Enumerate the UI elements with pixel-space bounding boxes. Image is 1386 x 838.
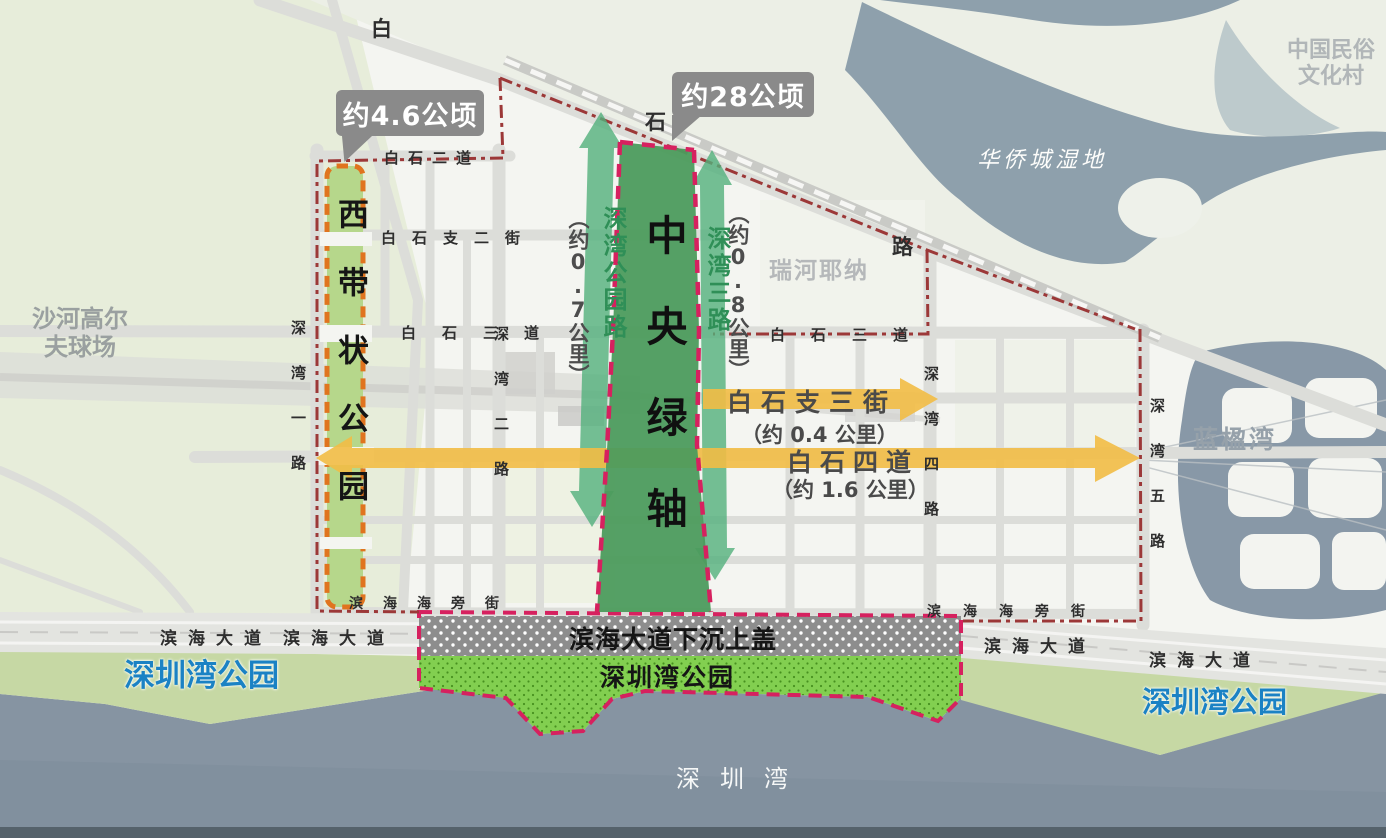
park-label-west-belt: 西带状公园 [328,198,373,538]
park-label-bay-park-east: 深圳湾公园 [1142,679,1287,721]
place-label-folk-line2: 文化村 [1278,64,1384,90]
place-label-folk-line1: 中国民俗 [1278,38,1384,64]
road-label-baishi-2nd: 白石二道 [384,147,480,168]
park-label-central-axis: 中央绿轴 [633,214,693,578]
place-label-wetland: 华侨城湿地 [977,142,1107,174]
callout-central-axis-text: 约28公顷 [681,75,805,114]
place-label-golf-line1: 沙河高尔 [10,305,150,333]
route-label-shenwan-park-road-length: （约0.7公里） [563,208,593,385]
place-label-golf: 沙河高尔 夫球场 [10,305,150,361]
park-label-bay-park-west: 深圳湾公园 [124,650,279,695]
road-label-baishi-branch-2nd: 白石支二街 [381,227,536,248]
road-label-shi: 石 [645,106,666,136]
road-label-baishi-3rd-east: 白石三道 [770,324,934,345]
road-label-binhai-dadao-r2: 滨海大道 [1149,646,1261,671]
road-label-shenwan-2nd: 深湾二路 [491,326,512,506]
callout-west-belt-text: 约4.6公顷 [343,94,478,133]
road-label-shenwan-5th: 深湾五路 [1147,398,1168,578]
road-label-binhai-dadao-l1: 滨海大道 [160,624,272,649]
route-label-baishi-branch-3rd: 白石支三街 [727,383,897,419]
place-label-folk-village: 中国民俗 文化村 [1278,38,1384,90]
route-label-shenwan-park-road: 深湾公园路 [596,206,631,341]
route-label-shenwan-3rd-length: （约0.8公里） [723,203,753,380]
park-label-bay-park-inside: 深圳湾公园 [600,658,735,694]
place-label-lanying: 蓝楹湾 [1193,420,1277,456]
route-label-baishi-4th-length: （约 1.6 公里） [772,474,929,504]
road-label-shenwan-4th: 深湾四路 [921,366,942,546]
place-label-golf-line2: 夫球场 [10,333,150,361]
road-label-shenwan-1st: 深湾一路 [288,320,309,500]
place-label-bay: 深圳湾 [676,759,808,794]
park-label-binhai-cover: 滨海大道下沉上盖 [569,620,777,656]
road-label-baishi-3rd-west: 白石三道 [401,322,565,343]
callout-central-axis: 约28公顷 [672,72,814,117]
road-label-haipang-east: 滨海海旁街 [927,601,1107,621]
road-label-binhai-dadao-r1: 滨海大道 [984,632,1096,657]
callout-west-belt: 约4.6公顷 [336,90,484,136]
road-label-binhai-dadao-l2: 滨海大道 [283,624,395,649]
planning-map: 约4.6公顷 约28公顷 白 石 路 白石二道 白石支二街 白石三道 白石三道 … [0,0,1386,838]
road-label-bai: 白 [371,13,392,43]
road-label-haipang-west: 滨海海旁街 [349,593,519,613]
place-label-ruihe: 瑞河耶纳 [769,251,869,285]
road-label-lu: 路 [892,231,913,261]
